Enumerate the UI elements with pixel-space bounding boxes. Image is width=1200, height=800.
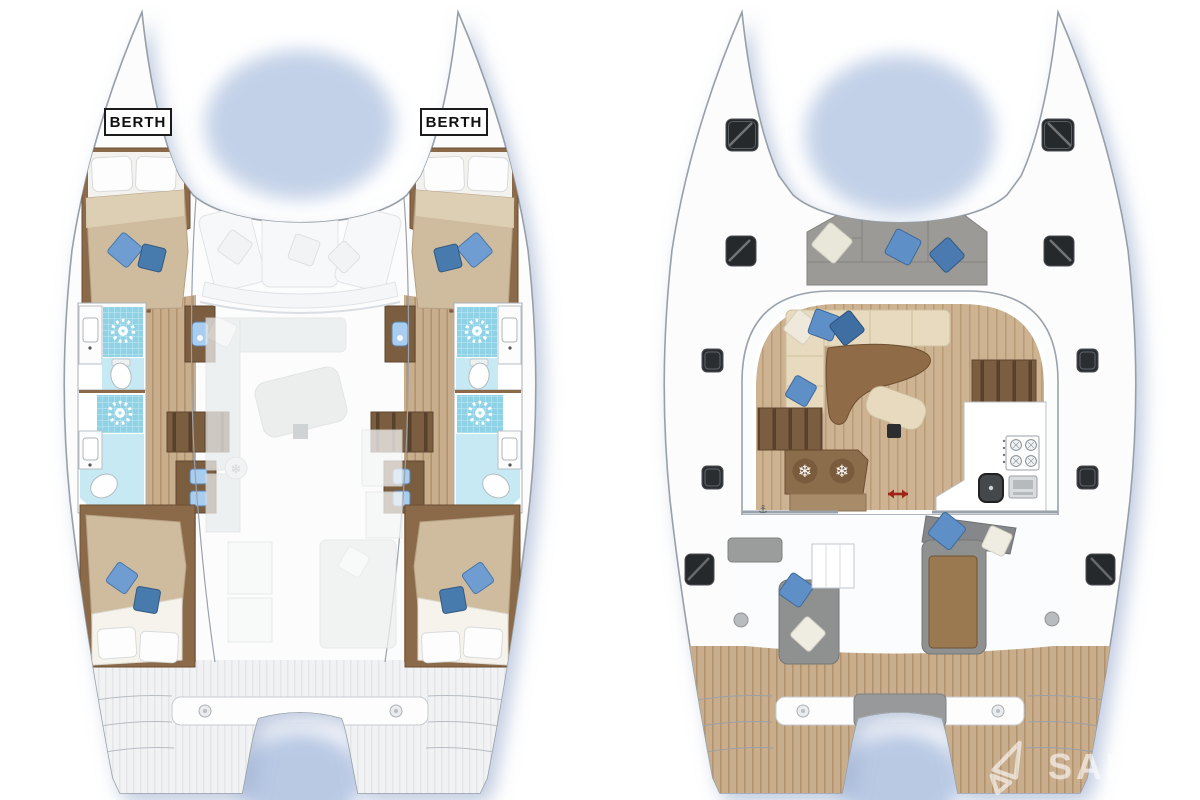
berth-label-starboard: BERTH (420, 108, 488, 136)
anchor-fitting-icon: ⚓ (758, 503, 768, 516)
forward-cockpit-seating (807, 208, 987, 285)
stove-icon (1003, 436, 1039, 470)
berth-label-port: BERTH (104, 108, 172, 136)
salon: ❄ ❄ (742, 291, 1058, 515)
salon-steps (758, 408, 822, 450)
freezer-icon: ❄ (835, 462, 849, 482)
catamaran-floorplan-page: ❄ (0, 0, 1200, 800)
oven-icon (1009, 476, 1037, 498)
bow-gap-shadow (805, 55, 995, 215)
helm-seat (854, 694, 946, 727)
stern-water-shadow (838, 732, 962, 800)
deck-hardware (1045, 612, 1059, 626)
mast-base (293, 424, 308, 439)
bench (790, 494, 866, 511)
stern-bench (776, 694, 1024, 727)
mast-base (887, 424, 901, 438)
galley-sink (979, 474, 1003, 502)
cockpit-bench (728, 538, 782, 562)
stern-water-shadow (238, 732, 362, 800)
freezer-icon: ❄ (798, 462, 812, 482)
galley-cabinet (972, 360, 1036, 402)
cockpit-steps (812, 544, 854, 588)
foredeck-settee-ghost (197, 205, 402, 313)
floorplan-graphic: ❄ (0, 0, 1200, 800)
deck-plan: ❄ ❄ ⚓ (660, 12, 1140, 800)
deck-hardware (734, 613, 748, 627)
cockpit: ⚓ (728, 503, 1064, 664)
bow-gap-shadow (205, 50, 395, 200)
fridge-counter: ❄ ❄ (785, 450, 868, 511)
freezer-icon-ghost: ❄ (231, 463, 242, 478)
stern-bench (172, 697, 428, 725)
cockpit-table (929, 556, 977, 648)
